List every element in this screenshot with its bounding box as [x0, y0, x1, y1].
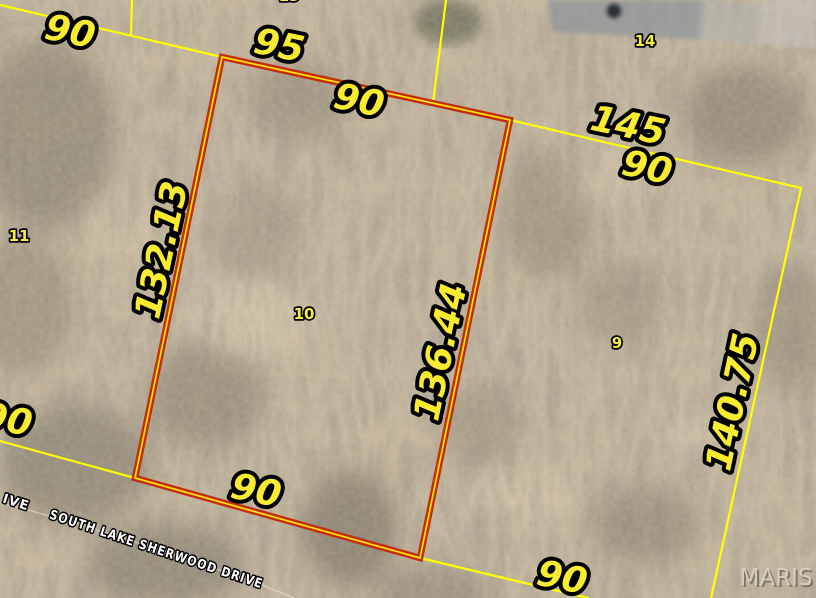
boundary-stub-topleft: [131, 0, 132, 36]
lot-number-14: 14: [635, 32, 656, 50]
aerial-parcel-map[interactable]: 90 95 90 145 90 132.13 136.44 140.75 90 …: [0, 0, 816, 598]
lot-number-9: 9: [612, 334, 622, 352]
map-canvas[interactable]: 90 95 90 145 90 132.13 136.44 140.75 90 …: [0, 0, 816, 598]
maris-watermark-text: MARIS: [740, 565, 813, 591]
lot-number-11: 11: [9, 227, 30, 245]
aerial-terrain: [0, 0, 816, 598]
lot-number-10: 10: [294, 305, 315, 323]
chimney-shadow: [606, 3, 622, 19]
lot-number-13-partial: 13: [279, 0, 300, 5]
maris-watermark: MARIS MARIS: [740, 565, 815, 593]
